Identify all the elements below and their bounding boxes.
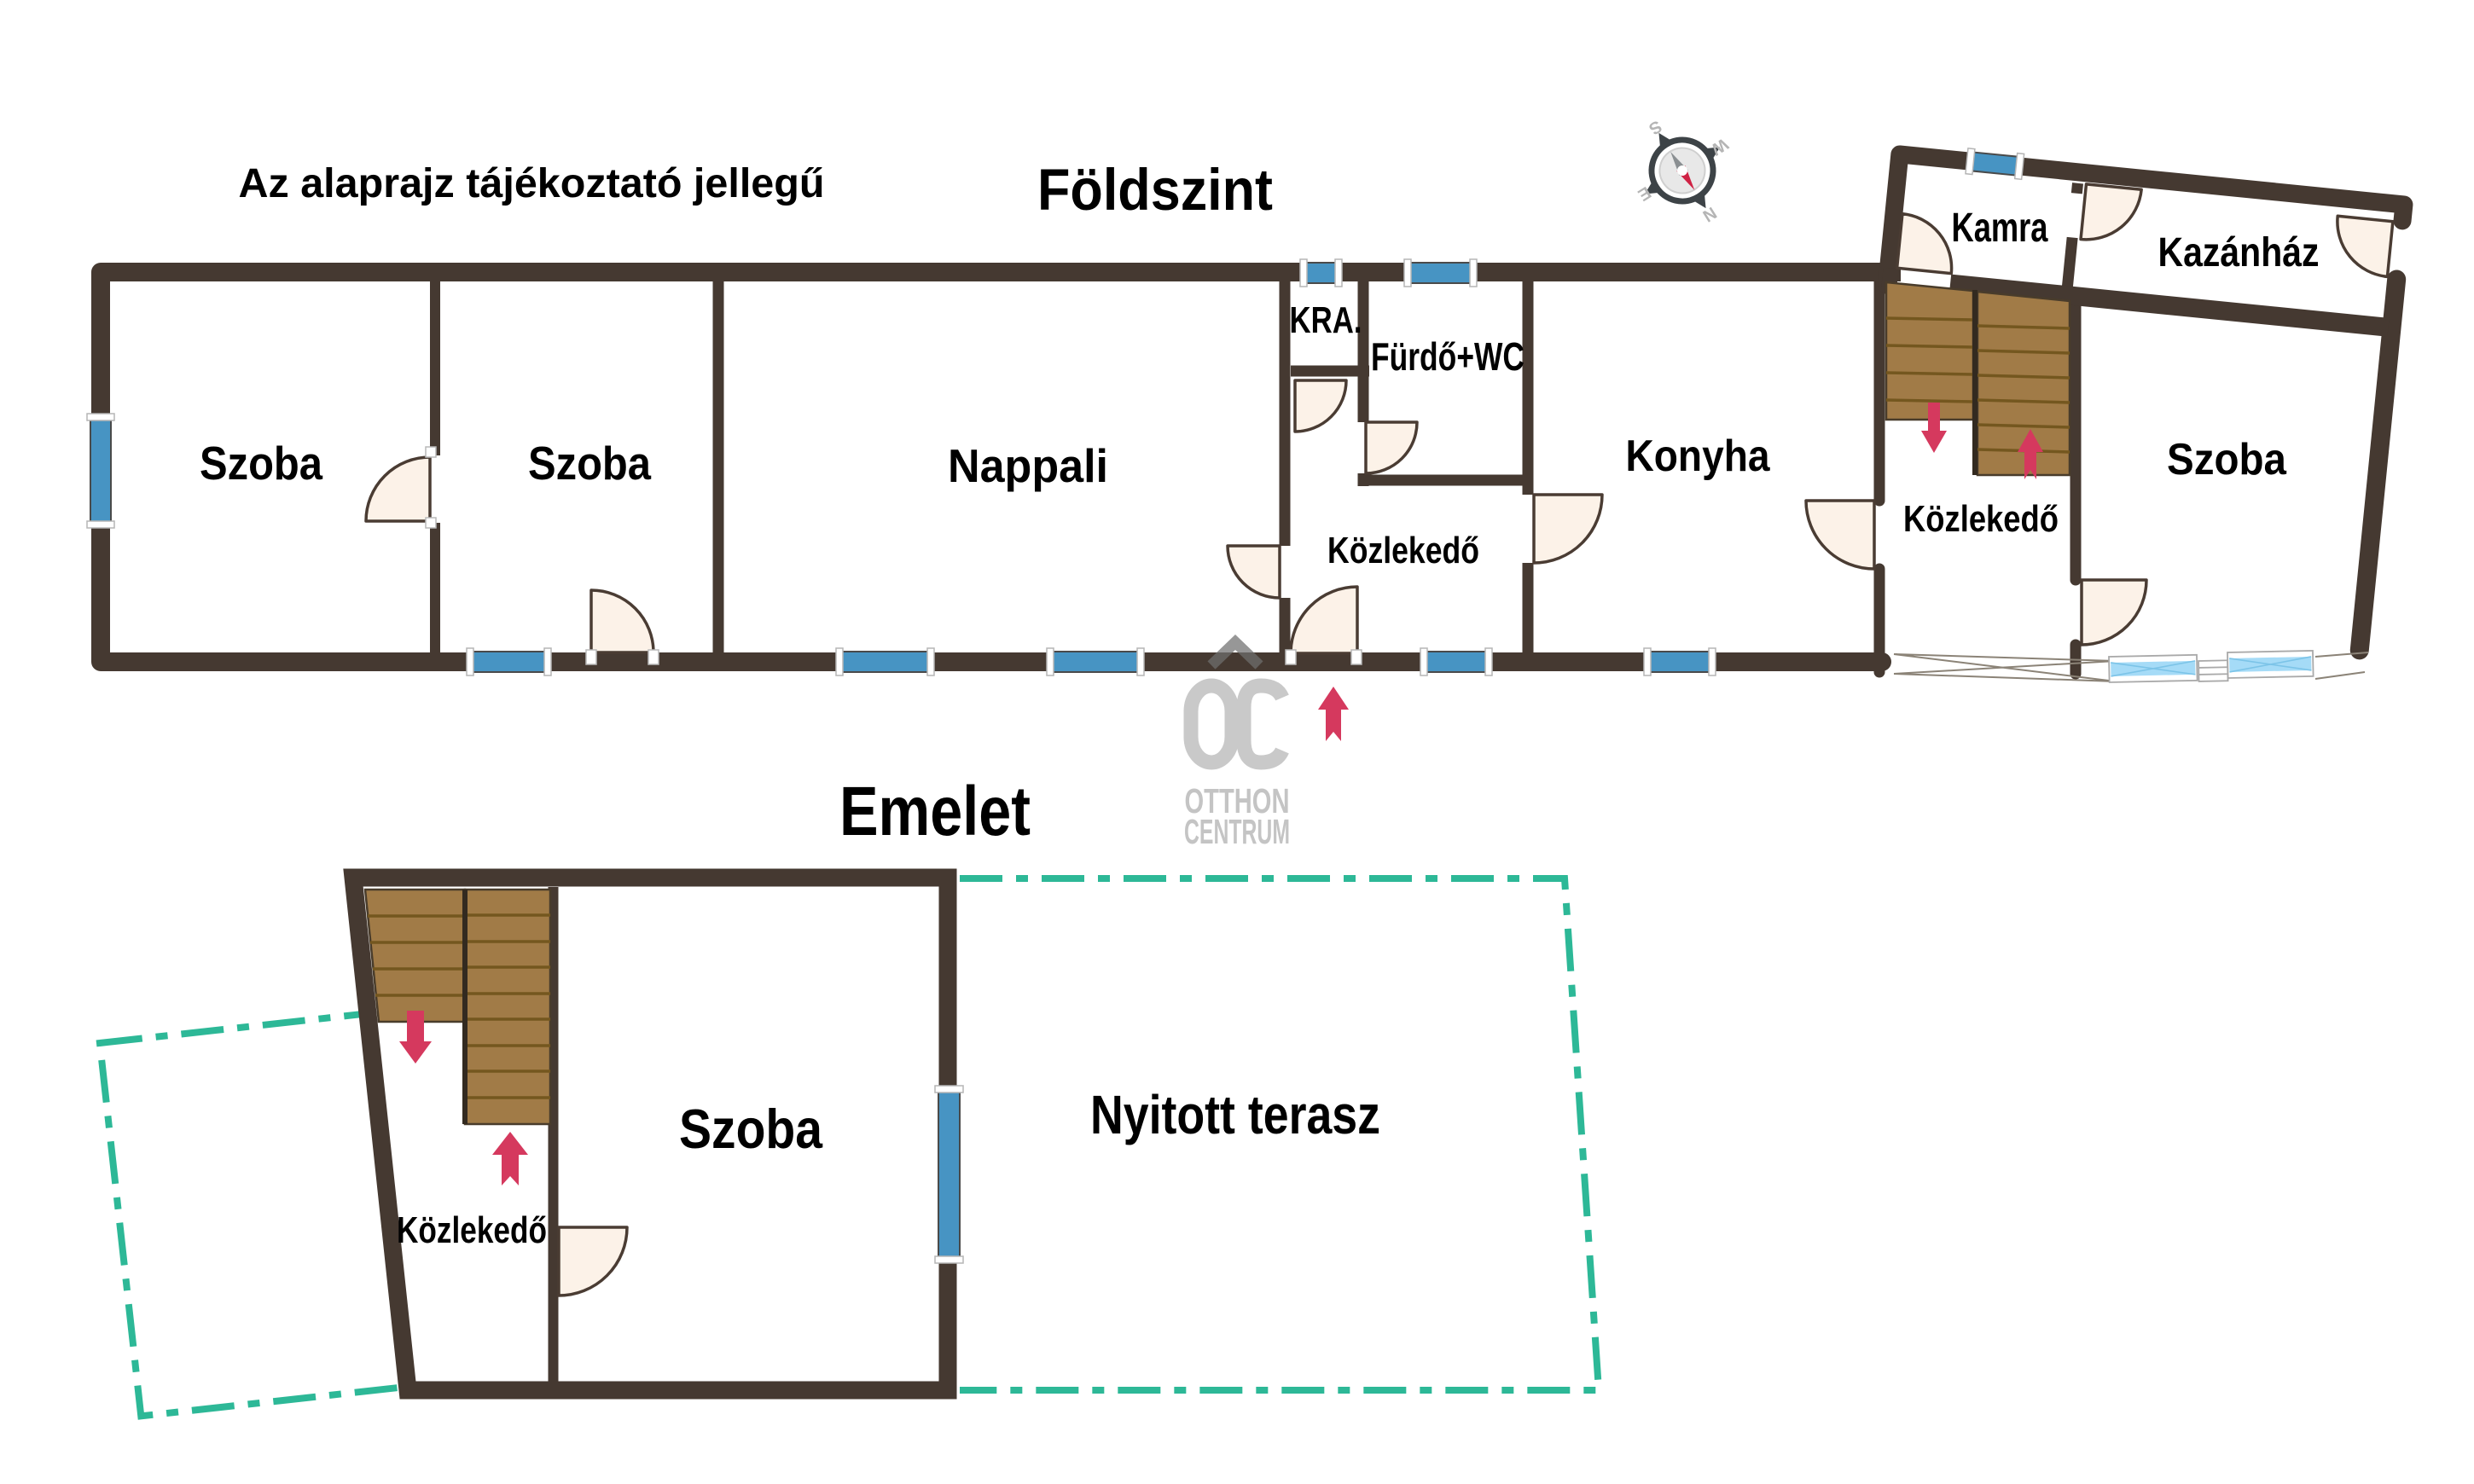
svg-text:Az alaprajz tájékoztató jelleg: Az alaprajz tájékoztató jellegű: [239, 161, 825, 206]
svg-text:Kamra: Kamra: [1952, 206, 2048, 251]
svg-text:Szoba: Szoba: [200, 437, 322, 490]
svg-text:Szoba: Szoba: [528, 437, 651, 490]
svg-text:Nyitott terasz: Nyitott terasz: [1090, 1084, 1380, 1145]
svg-text:Fürdő+WC: Fürdő+WC: [1371, 334, 1524, 379]
svg-text:Konyha: Konyha: [1626, 432, 1771, 481]
svg-text:N: N: [1699, 203, 1720, 225]
svg-text:Emelet: Emelet: [839, 773, 1031, 850]
svg-text:S: S: [1646, 116, 1665, 138]
svg-text:Kazánház: Kazánház: [2158, 230, 2320, 275]
svg-text:Közlekedő: Közlekedő: [1327, 530, 1479, 571]
svg-text:Közlekedő: Közlekedő: [397, 1209, 547, 1251]
svg-text:Szoba: Szoba: [679, 1098, 823, 1160]
svg-text:Közlekedő: Közlekedő: [1903, 498, 2059, 540]
svg-text:CENTRUM: CENTRUM: [1184, 812, 1290, 851]
svg-text:Szoba: Szoba: [2167, 435, 2287, 484]
svg-text:Földszint: Földszint: [1037, 157, 1273, 223]
svg-text:Nappali: Nappali: [948, 439, 1108, 492]
svg-text:KRA.: KRA.: [1290, 299, 1362, 341]
